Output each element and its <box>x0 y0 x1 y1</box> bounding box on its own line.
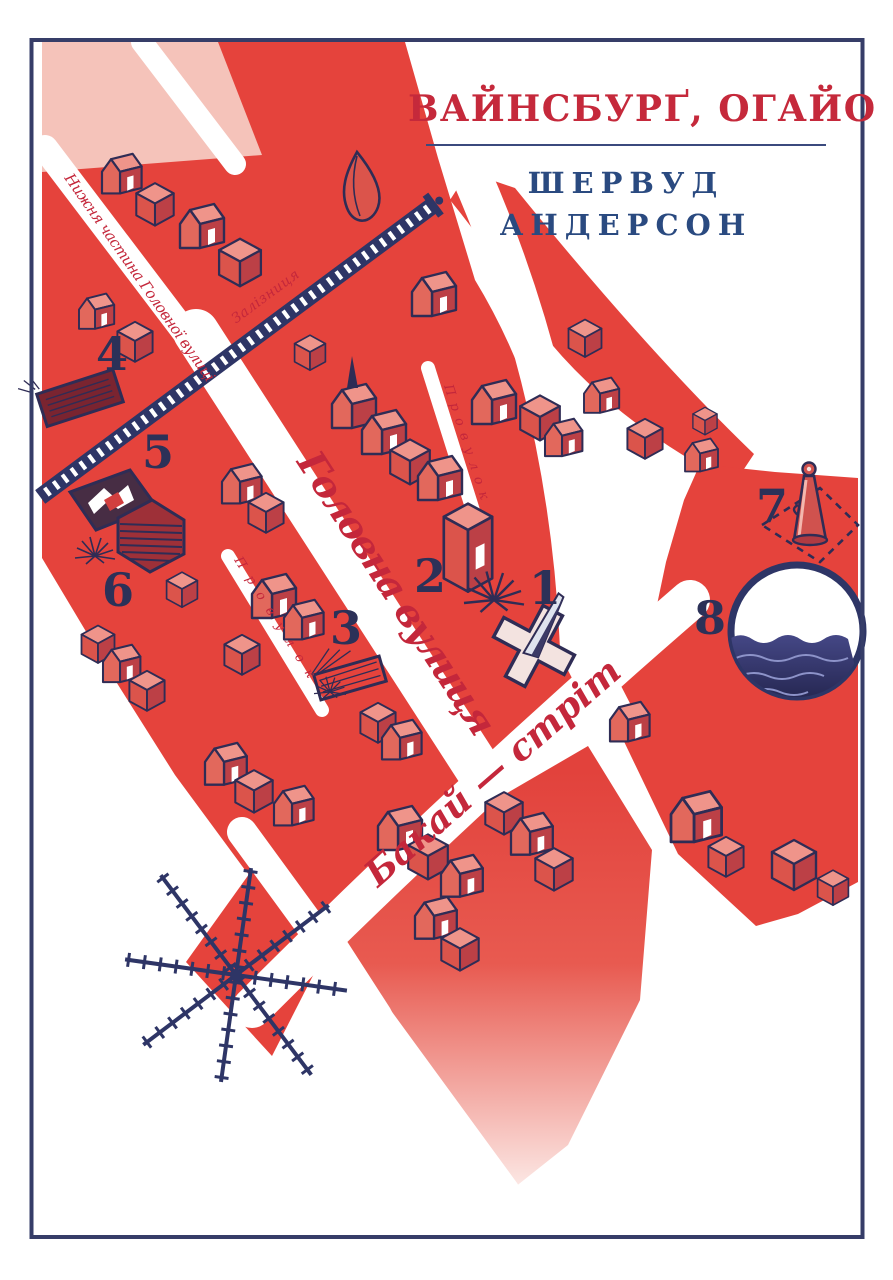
building <box>224 635 259 675</box>
building <box>693 407 717 435</box>
building <box>772 840 816 890</box>
author-last-name: Андерсон <box>408 204 844 246</box>
building <box>295 335 326 370</box>
marker-7: 7 <box>756 479 788 533</box>
building <box>627 419 662 459</box>
marker-6: 6 <box>102 563 134 617</box>
marker-8: 8 <box>694 591 726 645</box>
building <box>569 320 602 358</box>
marker-1: 1 <box>529 561 561 615</box>
building <box>219 239 261 287</box>
marker-5: 5 <box>142 425 174 479</box>
building <box>444 504 492 592</box>
marker-2: 2 <box>414 549 446 603</box>
building <box>235 770 272 813</box>
building <box>535 848 572 891</box>
building <box>708 837 743 877</box>
building <box>248 493 283 533</box>
building <box>818 870 849 905</box>
building <box>129 671 164 711</box>
marker-3: 3 <box>330 601 362 655</box>
author-first-name: Шервуд <box>408 162 844 204</box>
book-cover: Нижня частина Головної вулиці Залізниця … <box>0 0 893 1280</box>
title-divider <box>426 144 826 146</box>
building <box>441 928 478 971</box>
building <box>136 183 173 226</box>
book-title: Вайнсбурґ, Огайо <box>408 88 844 130</box>
title-block: Вайнсбурґ, Огайо Шервуд Андерсон <box>408 88 844 246</box>
marker-4: 4 <box>96 327 128 381</box>
building <box>167 572 198 607</box>
